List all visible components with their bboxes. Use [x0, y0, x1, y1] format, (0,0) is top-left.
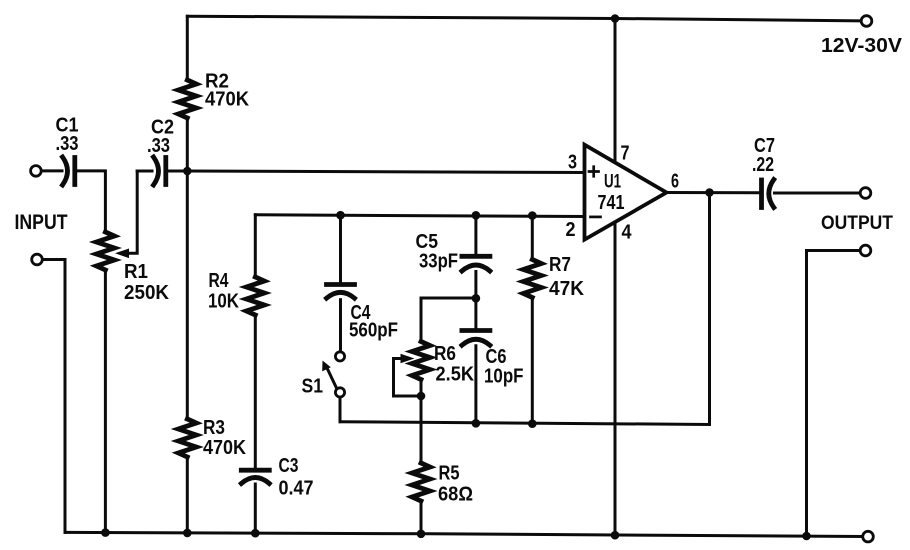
svg-text:R6: R6	[434, 343, 456, 365]
svg-text:.22: .22	[752, 154, 774, 176]
svg-text:R5: R5	[439, 463, 460, 485]
svg-text:7: 7	[621, 143, 630, 165]
svg-text:.33: .33	[56, 133, 79, 155]
svg-text:470K: 470K	[205, 89, 250, 111]
svg-text:470K: 470K	[203, 437, 247, 459]
svg-text:10pF: 10pF	[484, 366, 524, 388]
svg-text:OUTPUT: OUTPUT	[821, 213, 893, 234]
svg-text:12V-30V: 12V-30V	[821, 35, 903, 57]
svg-text:U1: U1	[604, 172, 621, 193]
svg-text:.33: .33	[147, 135, 170, 157]
svg-text:S1: S1	[302, 376, 324, 398]
svg-text:33pF: 33pF	[419, 251, 458, 273]
svg-text:4: 4	[622, 222, 633, 244]
svg-text:0.47: 0.47	[279, 478, 314, 500]
svg-text:250K: 250K	[124, 282, 170, 304]
svg-text:INPUT: INPUT	[15, 211, 68, 234]
svg-text:R1: R1	[124, 261, 148, 283]
svg-text:R3: R3	[203, 417, 225, 439]
svg-text:560pF: 560pF	[349, 320, 398, 342]
svg-text:R7: R7	[549, 254, 571, 276]
svg-text:2: 2	[566, 219, 576, 241]
svg-text:47K: 47K	[549, 278, 585, 300]
svg-text:68Ω: 68Ω	[438, 484, 473, 506]
svg-text:6: 6	[671, 171, 679, 193]
svg-text:741: 741	[598, 192, 625, 214]
svg-text:3: 3	[568, 152, 577, 174]
svg-text:R4: R4	[209, 270, 230, 292]
svg-text:2.5K: 2.5K	[436, 364, 475, 386]
svg-text:10K: 10K	[208, 291, 239, 313]
svg-text:C3: C3	[279, 455, 299, 477]
